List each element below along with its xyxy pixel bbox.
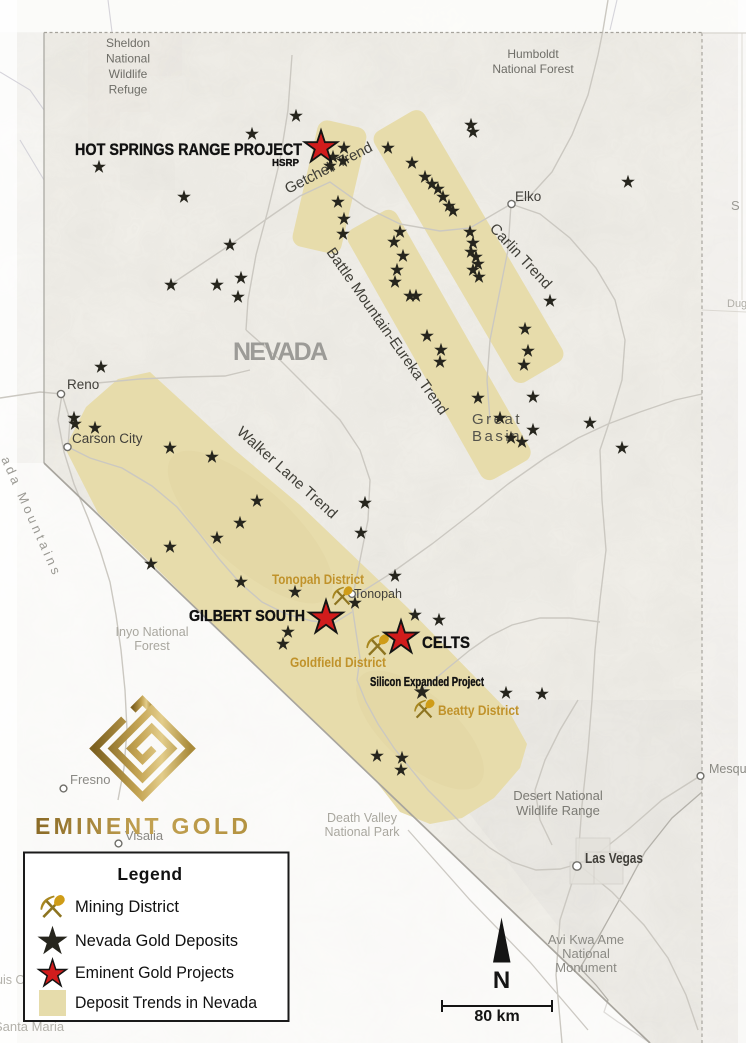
svg-text:HSRP: HSRP bbox=[272, 157, 299, 169]
svg-text:Dug: Dug bbox=[727, 298, 746, 310]
svg-text:GILBERT SOUTH: GILBERT SOUTH bbox=[189, 608, 305, 625]
svg-text:Silicon Expanded Project: Silicon Expanded Project bbox=[370, 675, 485, 689]
svg-text:N: N bbox=[493, 967, 510, 994]
svg-text:Goldfield District: Goldfield District bbox=[290, 655, 386, 670]
svg-text:Tonopah: Tonopah bbox=[354, 587, 402, 601]
svg-text:80 km: 80 km bbox=[474, 1008, 519, 1025]
svg-text:National Forest: National Forest bbox=[492, 62, 574, 76]
svg-text:Humboldt: Humboldt bbox=[507, 47, 559, 61]
svg-text:Desert National: Desert National bbox=[513, 788, 603, 803]
svg-text:Fresno: Fresno bbox=[70, 772, 110, 787]
svg-text:Legend: Legend bbox=[117, 864, 182, 884]
svg-text:Monument: Monument bbox=[555, 960, 617, 975]
svg-text:Eminent Gold Projects: Eminent Gold Projects bbox=[75, 964, 234, 982]
svg-text:National Park: National Park bbox=[324, 825, 400, 839]
svg-text:Beatty District: Beatty District bbox=[438, 703, 519, 718]
svg-text:S: S bbox=[731, 198, 740, 213]
svg-text:uis O: uis O bbox=[0, 973, 25, 987]
svg-text:Great: Great bbox=[472, 411, 522, 428]
svg-text:Las Vegas: Las Vegas bbox=[585, 851, 643, 867]
svg-text:Elko: Elko bbox=[515, 189, 541, 204]
svg-text:Deposit Trends in Nevada: Deposit Trends in Nevada bbox=[75, 994, 258, 1012]
svg-text:Sheldon: Sheldon bbox=[106, 36, 150, 50]
svg-text:Forest: Forest bbox=[134, 639, 170, 653]
svg-text:EMINENT GOLD: EMINENT GOLD bbox=[35, 813, 253, 839]
svg-text:Inyo National: Inyo National bbox=[116, 625, 189, 639]
svg-text:Mesqu: Mesqu bbox=[709, 762, 746, 776]
svg-text:Carson City: Carson City bbox=[72, 431, 143, 446]
svg-text:HOT SPRINGS RANGE PROJECT: HOT SPRINGS RANGE PROJECT bbox=[75, 140, 303, 159]
svg-text:Nevada Gold Deposits: Nevada Gold Deposits bbox=[75, 932, 238, 950]
svg-text:Wildlife Range: Wildlife Range bbox=[516, 803, 600, 818]
svg-text:NEVADA: NEVADA bbox=[233, 338, 330, 366]
svg-text:Death Valley: Death Valley bbox=[327, 811, 398, 825]
svg-text:Wildlife: Wildlife bbox=[109, 67, 148, 81]
svg-text:Mining District: Mining District bbox=[75, 898, 179, 916]
svg-text:CELTS: CELTS bbox=[422, 633, 470, 652]
svg-text:National: National bbox=[106, 52, 150, 66]
svg-text:Tonopah District: Tonopah District bbox=[272, 572, 364, 587]
svg-text:Reno: Reno bbox=[67, 377, 99, 392]
svg-text:Refuge: Refuge bbox=[109, 83, 148, 97]
svg-text:National: National bbox=[562, 946, 610, 961]
svg-text:Avi Kwa Ame: Avi Kwa Ame bbox=[548, 932, 624, 947]
